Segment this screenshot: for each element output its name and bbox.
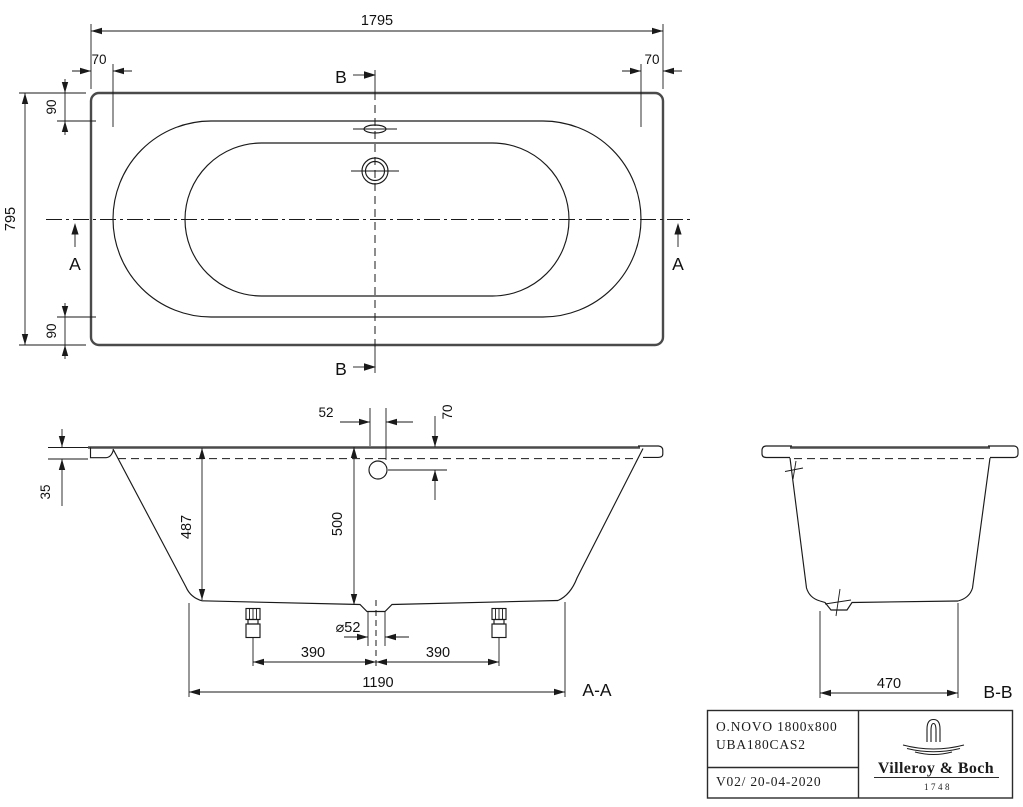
dim-foot-span-value: 1190	[362, 675, 393, 691]
dim-overflow-offset-value: 52	[318, 405, 333, 420]
section-b-label: B	[335, 359, 347, 379]
dim-offset-left-value: 70	[91, 52, 106, 67]
dim-width-value: 795	[3, 207, 19, 231]
dim-total-height-value: 500	[330, 512, 346, 536]
dim-total-height: 500	[330, 447, 357, 605]
dim-foot-left-value: 390	[301, 645, 325, 661]
foot-right	[492, 609, 506, 638]
dim-rim-height: 35	[38, 429, 65, 506]
section-aa-label: A-A	[582, 680, 612, 700]
section-bb-view: 470 B-B	[762, 446, 1018, 702]
dim-overflow-drop-value: 70	[440, 404, 455, 419]
section-b-marker-bottom: B	[335, 359, 376, 379]
section-a-label: A	[672, 254, 684, 274]
dim-inner-depth: 487	[179, 448, 205, 600]
dim-inset-bottom: 90	[44, 303, 96, 359]
overflow-cross-mark	[785, 461, 803, 479]
dim-drain-diameter-value: ⌀52	[336, 620, 361, 636]
dim-rim-height-value: 35	[38, 484, 53, 499]
title-block: O.NOVO 1800x800 UBA180CAS2 V02/ 20-04-20…	[708, 711, 1013, 799]
brand-name: Villeroy & Boch	[878, 760, 994, 777]
section-b-marker-top: B	[335, 67, 376, 87]
dim-offset-left: 70	[72, 52, 132, 127]
tub-bottom-bb	[820, 601, 958, 610]
wall-right	[558, 449, 643, 601]
tub-bottom	[202, 601, 558, 612]
section-aa-view: 35 52 70 487	[38, 404, 663, 700]
section-a-marker-right: A	[672, 223, 684, 274]
villeroy-boch-faucet-icon	[903, 720, 964, 755]
dim-overflow-offset: 52	[318, 405, 413, 460]
wall-left-bb	[790, 458, 820, 601]
product-name: O.NOVO 1800x800	[716, 719, 838, 734]
plan-view: 1795 70 70 795	[3, 13, 691, 379]
article-number: UBA180CAS2	[716, 737, 806, 752]
dim-foot-span: 1190	[189, 602, 565, 697]
rim-lip-right-bb	[988, 446, 1018, 458]
rim-lip-left	[91, 448, 114, 458]
dim-inset-top: 90	[44, 79, 96, 135]
dim-length-value: 1795	[361, 13, 393, 29]
dim-offset-right-value: 70	[644, 52, 659, 67]
dim-offset-right: 70	[622, 52, 682, 127]
dim-inner-depth-value: 487	[179, 515, 195, 539]
dim-overflow-drop: 70	[432, 404, 455, 500]
overflow-hole-section	[369, 461, 387, 479]
dim-bottom-width-value: 470	[877, 676, 901, 692]
dim-length: 1795	[91, 13, 663, 89]
brand-year: 1748	[924, 782, 952, 792]
technical-drawing-canvas: 1795 70 70 795	[0, 0, 1023, 807]
dim-inset-top-value: 90	[44, 99, 59, 114]
tub-inner-rim-oval	[113, 121, 641, 317]
section-a-label: A	[69, 254, 81, 274]
section-b-label: B	[335, 67, 347, 87]
rim-lip-left-bb	[762, 446, 792, 458]
drain-hole	[351, 158, 399, 184]
drawing-version: V02/ 20-04-2020	[716, 774, 821, 789]
wall-right-bb	[958, 458, 990, 601]
tub-outer-rim	[91, 93, 663, 345]
drain-cross-mark	[825, 589, 851, 616]
dim-drain-diameter: ⌀52	[336, 612, 409, 646]
dim-width: 795	[3, 93, 86, 345]
dim-inset-bottom-value: 90	[44, 323, 59, 338]
section-bb-label: B-B	[983, 682, 1012, 702]
dim-bottom-width: 470	[820, 603, 958, 698]
section-a-marker-left: A	[69, 223, 81, 274]
foot-left	[246, 609, 260, 638]
dim-foot-right-value: 390	[426, 645, 450, 661]
